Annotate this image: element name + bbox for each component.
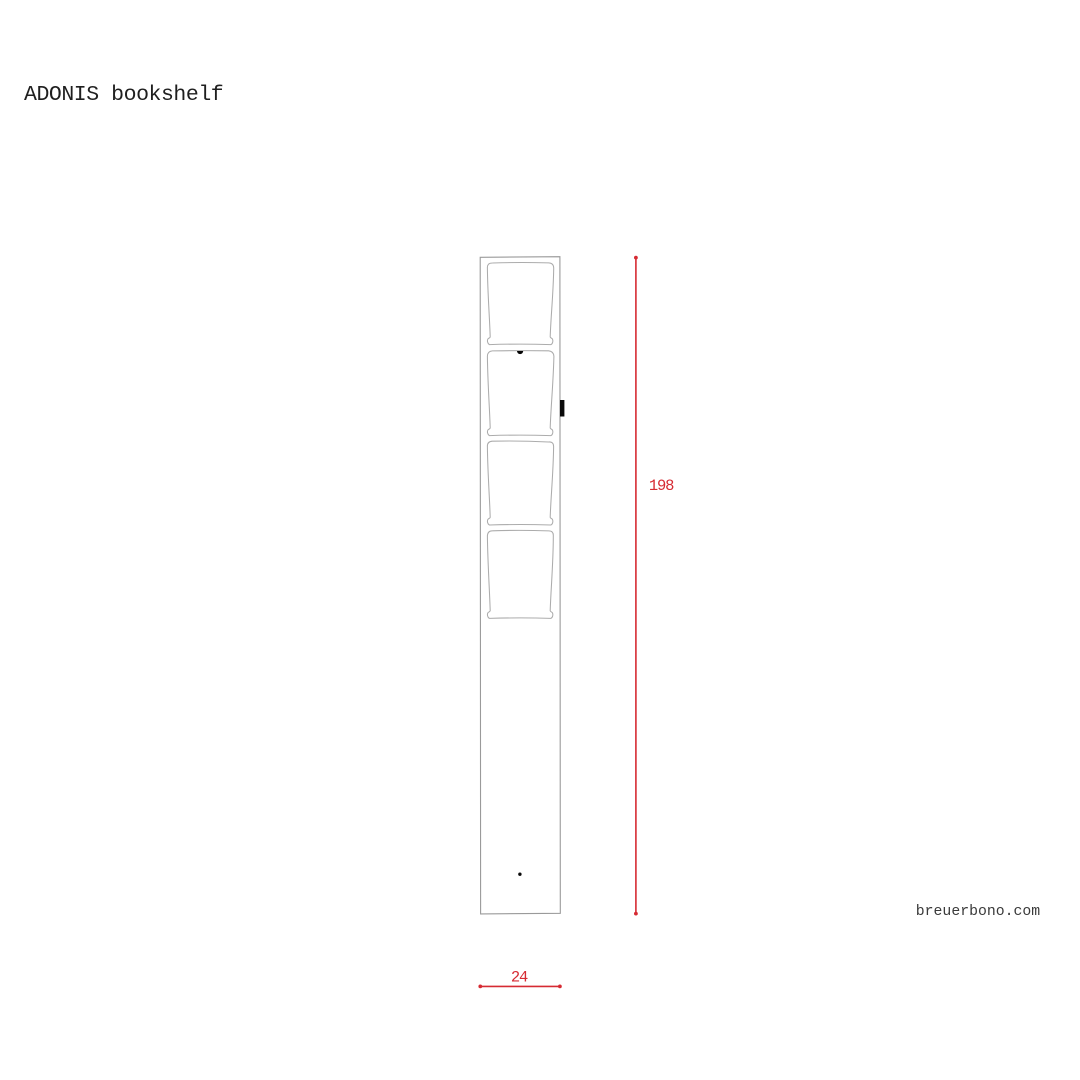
- svg-text:198: 198: [649, 477, 674, 495]
- svg-text:24: 24: [511, 969, 528, 987]
- svg-text:ADONIS bookshelf: ADONIS bookshelf: [24, 83, 223, 107]
- svg-text:breuerbono.com: breuerbono.com: [916, 904, 1040, 920]
